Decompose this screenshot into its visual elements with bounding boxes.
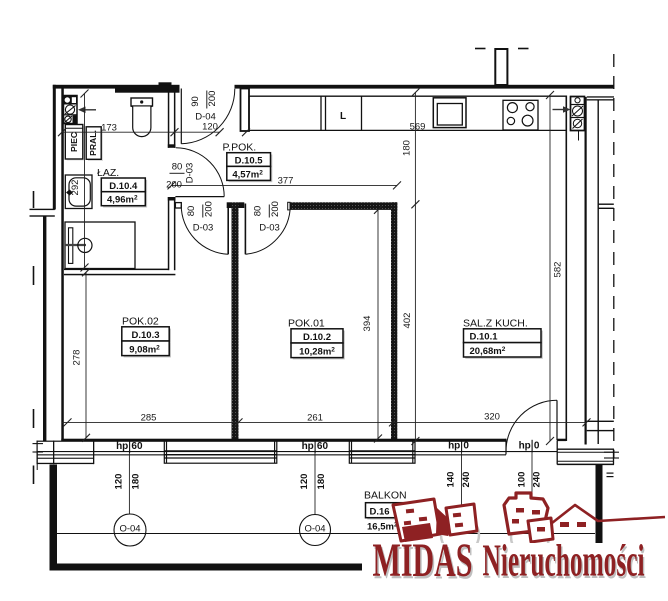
svg-text:173: 173 <box>101 123 117 134</box>
svg-text:hp: hp <box>302 441 314 452</box>
svg-text:hp: hp <box>116 441 128 452</box>
svg-text:20,68m2: 20,68m2 <box>470 346 506 357</box>
svg-text:POK.01: POK.01 <box>288 318 325 330</box>
svg-text:9,08m2: 9,08m2 <box>129 344 160 355</box>
svg-text:D.10.1: D.10.1 <box>470 332 499 343</box>
svg-text:582: 582 <box>553 262 564 278</box>
svg-text:60: 60 <box>131 441 143 452</box>
svg-text:4,57m2: 4,57m2 <box>232 169 263 180</box>
svg-text:90: 90 <box>190 96 201 107</box>
svg-text:180: 180 <box>402 140 413 156</box>
svg-text:80: 80 <box>172 162 183 173</box>
svg-text:D.10.4: D.10.4 <box>109 181 138 192</box>
svg-text:292: 292 <box>70 180 81 196</box>
svg-text:SAL.Z KUCH.: SAL.Z KUCH. <box>463 318 528 330</box>
svg-text:D.10.3: D.10.3 <box>132 330 160 341</box>
svg-text:261: 261 <box>307 412 323 423</box>
svg-text:L: L <box>340 111 346 122</box>
svg-text:D-03: D-03 <box>193 223 214 234</box>
svg-text:0: 0 <box>463 440 469 451</box>
svg-text:120: 120 <box>114 474 125 490</box>
svg-text:100: 100 <box>517 472 528 488</box>
svg-text:200: 200 <box>270 201 281 217</box>
svg-text:PIEC: PIEC <box>69 132 79 152</box>
svg-text:O-04: O-04 <box>304 524 325 535</box>
svg-text:320: 320 <box>484 411 500 422</box>
svg-text:80: 80 <box>186 206 197 217</box>
svg-text:O-04: O-04 <box>119 524 140 535</box>
svg-text:569: 569 <box>410 122 426 133</box>
svg-text:BALKON: BALKON <box>364 490 407 502</box>
svg-text:120: 120 <box>299 474 310 490</box>
svg-text:4,96m2: 4,96m2 <box>107 195 138 206</box>
svg-text:278: 278 <box>72 350 83 366</box>
svg-text:180: 180 <box>316 474 327 490</box>
svg-text:120: 120 <box>202 122 218 133</box>
svg-text:200: 200 <box>204 201 215 217</box>
svg-text:hp: hp <box>448 440 460 451</box>
svg-text:D.10.2: D.10.2 <box>303 332 331 343</box>
svg-text:285: 285 <box>141 412 157 423</box>
svg-text:ŁAZ.: ŁAZ. <box>97 167 119 179</box>
svg-text:P.POK.: P.POK. <box>223 142 257 154</box>
svg-text:140: 140 <box>446 472 457 488</box>
svg-text:180: 180 <box>131 474 142 490</box>
svg-text:D.16: D.16 <box>370 506 390 517</box>
svg-text:16,5m2: 16,5m2 <box>367 522 398 533</box>
svg-text:240: 240 <box>461 472 472 488</box>
svg-text:D.10.5: D.10.5 <box>235 155 264 166</box>
svg-text:POK.02: POK.02 <box>122 316 159 328</box>
svg-text:hp: hp <box>519 440 531 451</box>
svg-text:Nieruchomości: Nieruchomości <box>483 536 645 586</box>
svg-text:240: 240 <box>532 472 543 488</box>
svg-text:80: 80 <box>253 206 264 217</box>
svg-text:200: 200 <box>207 91 218 107</box>
svg-text:D-04: D-04 <box>195 112 216 123</box>
svg-text:D-03: D-03 <box>185 163 196 184</box>
svg-text:200: 200 <box>166 180 182 191</box>
svg-text:60: 60 <box>317 441 329 452</box>
svg-text:10,28m2: 10,28m2 <box>299 346 335 357</box>
svg-text:402: 402 <box>402 313 413 329</box>
svg-text:PRAL.: PRAL. <box>88 130 98 156</box>
svg-text:394: 394 <box>362 316 373 332</box>
svg-text:0: 0 <box>534 440 540 451</box>
svg-text:D-03: D-03 <box>259 223 280 234</box>
svg-text:377: 377 <box>278 175 294 186</box>
svg-text:MIDAS: MIDAS <box>373 534 473 587</box>
